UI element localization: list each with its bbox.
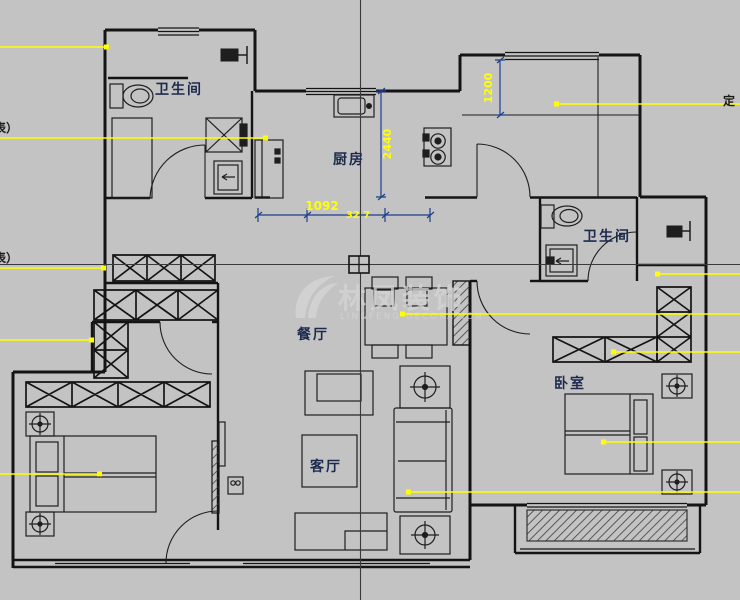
media-box <box>228 477 243 494</box>
leader-lines <box>0 45 740 495</box>
bed-right <box>565 394 653 474</box>
wardrobe-bedroom-right-row <box>553 337 657 362</box>
toilet <box>541 205 582 228</box>
sofa <box>394 408 452 512</box>
floorplan-drawing: 林凤装饰 LIN&FENG DECORATION 1200 2440 1092 … <box>0 0 740 600</box>
label-living: 客厅 <box>309 458 342 475</box>
edge-text-left-upper: 表） <box>0 120 18 135</box>
dim-line-1200 <box>495 57 505 118</box>
dim-text-1200: 1200 <box>482 72 495 103</box>
kitchen-sink <box>334 95 374 117</box>
tv-cabinet <box>295 513 387 550</box>
door-room-top-right <box>477 144 530 197</box>
ac-unit-icon <box>667 221 690 241</box>
dim-text-2440: 2440 <box>381 128 394 159</box>
label-bathroom-right: 卫生间 <box>583 228 631 245</box>
armchair <box>305 371 373 415</box>
kitchen-fixtures <box>255 95 451 198</box>
bathroom-right-fixtures <box>541 205 582 276</box>
hall-cabinet-column <box>94 322 128 378</box>
tv-wall-mounted <box>219 422 225 466</box>
watermark-brand: 林凤装饰 <box>338 282 466 315</box>
door-bedroom-left-top <box>160 322 212 374</box>
ac-unit-icon <box>221 46 247 64</box>
washing-machine <box>546 245 577 276</box>
door-bedroom-right <box>477 281 530 334</box>
dim-text-1092: 1092 <box>305 199 338 213</box>
side-table-lamp <box>400 516 450 554</box>
edge-text-left-lower: 表） <box>0 250 18 265</box>
balcony-mat <box>527 510 687 541</box>
bathroom-left-fixtures <box>110 84 247 198</box>
washing-machine <box>214 161 242 194</box>
side-table-lamp <box>400 366 450 408</box>
watermark: 林凤装饰 LIN&FENG DECORATION <box>296 276 484 322</box>
door-bedroom-left-bottom <box>166 511 218 563</box>
shower-tray <box>206 118 247 152</box>
wardrobe-bedroom-left <box>26 382 210 407</box>
hall-cabinet-row-upper <box>113 255 215 281</box>
dim-text-secondary: 32 7 <box>346 210 370 221</box>
door-bathroom-left <box>150 145 205 198</box>
crosshair-center-marker <box>349 256 369 273</box>
dim-line-1092 <box>255 208 434 222</box>
label-bedroom: 卧室 <box>554 375 586 392</box>
wardrobe-bedroom-right-column <box>657 287 691 362</box>
wall-mounted-items <box>221 46 690 241</box>
edge-text-right: 定 <box>723 93 735 108</box>
label-dining: 餐厅 <box>296 326 329 343</box>
bedroom-right-furniture <box>565 374 692 494</box>
hall-cabinet-row-lower <box>94 290 218 320</box>
wall-pier-bedroom-left <box>212 441 219 513</box>
nightstand-lamp <box>662 470 692 494</box>
floorplan-viewport: 林凤装饰 LIN&FENG DECORATION 1200 2440 1092 … <box>0 0 740 600</box>
nightstand-lamp <box>26 512 54 536</box>
nightstand-lamp <box>26 412 54 436</box>
nightstand-lamp <box>662 374 692 398</box>
label-kitchen: 厨房 <box>333 151 365 168</box>
gas-stove <box>423 128 451 166</box>
toilet <box>110 84 153 108</box>
bath-cabinet <box>112 118 152 198</box>
cabinets <box>26 255 691 407</box>
label-bathroom-left: 卫生间 <box>155 81 203 98</box>
kitchen-counter <box>255 140 283 198</box>
